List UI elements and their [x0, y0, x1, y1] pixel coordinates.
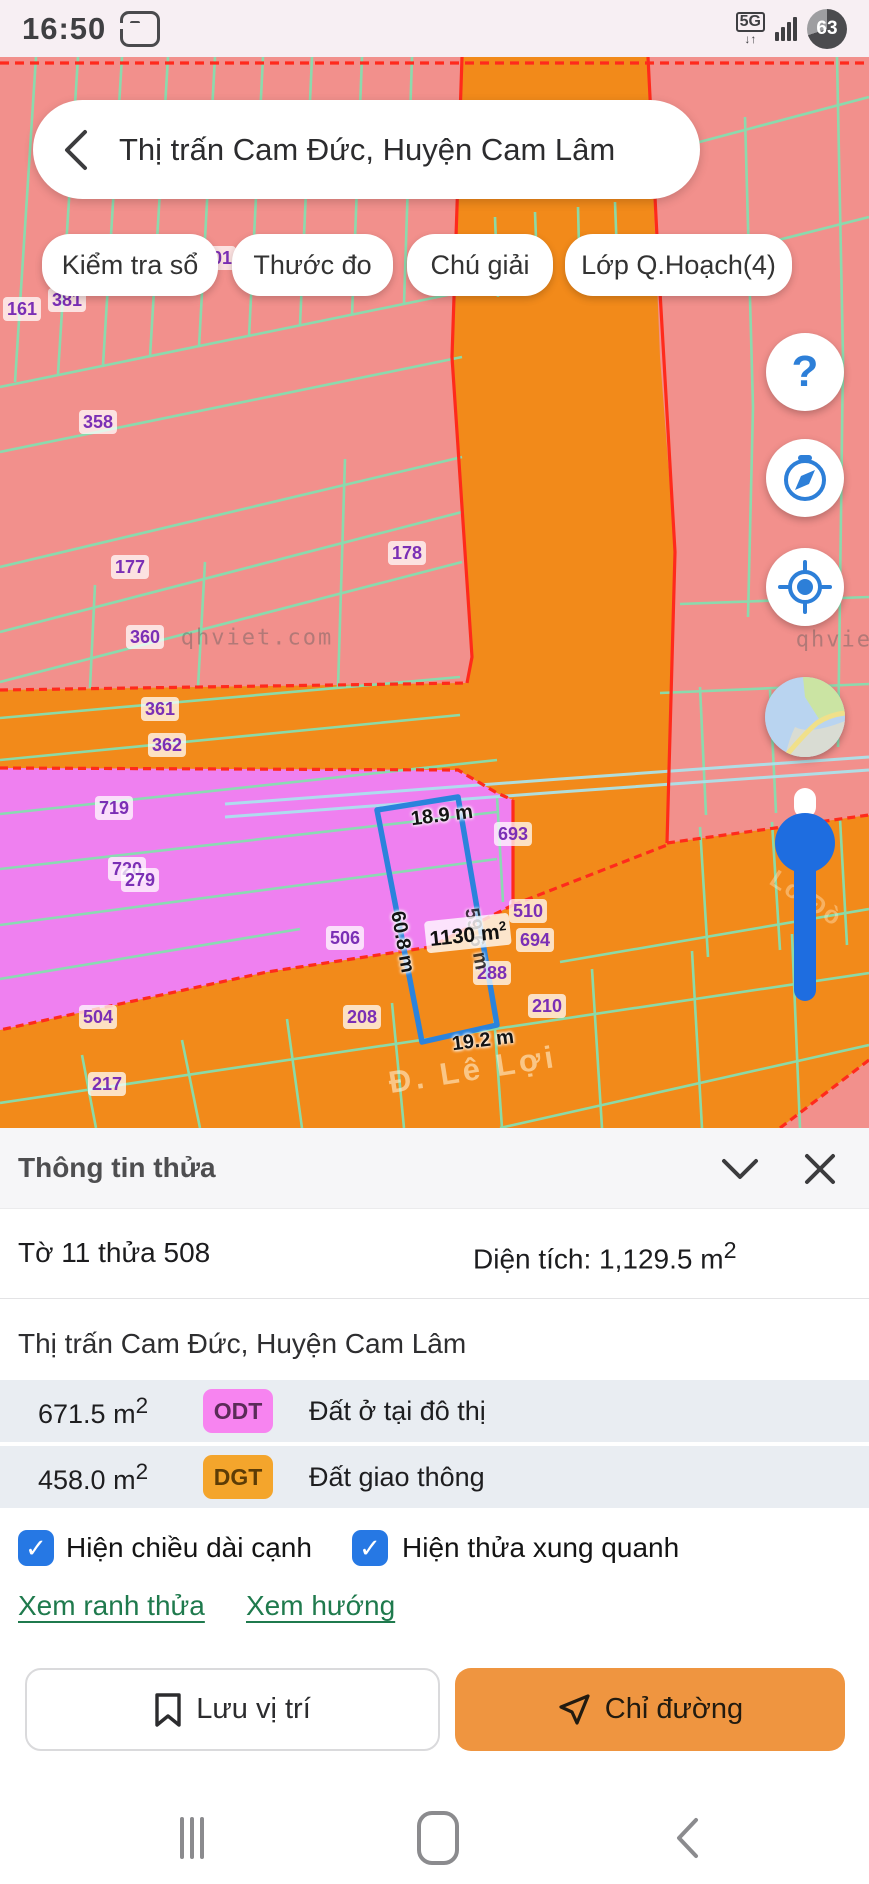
map-canvas: [0, 57, 869, 1128]
location-crosshair-icon: [778, 560, 832, 614]
status-bar: 16:50 5G↓↑ 63: [0, 0, 869, 57]
sheet-title: Thông tin thửa: [18, 1152, 216, 1184]
navigation-send-icon: [557, 1693, 591, 1727]
question-mark-icon: ?: [792, 347, 819, 397]
chevron-down-icon: [721, 1158, 759, 1180]
signal-strength-icon: [775, 17, 797, 41]
land-use-area: 458.0 m2: [38, 1459, 203, 1496]
land-use-area: 671.5 m2: [38, 1393, 203, 1430]
toolbar-button-0[interactable]: Kiểm tra sổ: [42, 234, 218, 296]
land-use-row: 671.5 m2 ODT Đất ở tại đô thị: [0, 1380, 869, 1442]
checkbox-show-surrounding-parcels[interactable]: ✓: [352, 1530, 388, 1566]
bookmark-icon: [154, 1692, 182, 1728]
toolbar-button-3[interactable]: Lớp Q.Hoạch(4): [565, 234, 792, 296]
my-location-button[interactable]: [766, 548, 844, 626]
cadastral-map[interactable]: qhviet.comqhviet.comĐ. Lê LợiLò Đò161381…: [0, 57, 869, 1128]
zoom-slider-knob[interactable]: [775, 813, 835, 873]
basemap-thumbnail-icon: [765, 677, 845, 757]
land-use-description: Đất ở tại đô thị: [309, 1396, 486, 1427]
directions-button[interactable]: Chỉ đường: [455, 1668, 845, 1751]
compass-icon: [779, 452, 831, 504]
compass-button[interactable]: [766, 439, 844, 517]
android-back-button[interactable]: [657, 1808, 717, 1868]
help-button[interactable]: ?: [766, 333, 844, 411]
home-button[interactable]: [408, 1808, 468, 1868]
toolbar-button-1[interactable]: Thước đo: [232, 234, 393, 296]
save-location-button[interactable]: Lưu vị trí: [25, 1668, 440, 1751]
land-use-code-badge: ODT: [203, 1389, 273, 1433]
screen-capture-icon: [120, 11, 160, 47]
checkbox-show-edge-lengths[interactable]: ✓: [18, 1530, 54, 1566]
toolbar-button-label: Chú giải: [430, 250, 529, 281]
recents-button[interactable]: [162, 1808, 222, 1868]
parcel-total-area: Diện tích: 1,129.5 m2: [473, 1237, 737, 1275]
view-parcel-boundary-link[interactable]: Xem ranh thửa: [18, 1590, 205, 1622]
search-bar[interactable]: Thị trấn Cam Đức, Huyện Cam Lâm: [33, 100, 700, 199]
toolbar-button-label: Thước đo: [253, 250, 371, 281]
land-use-row: 458.0 m2 DGT Đất giao thông: [0, 1446, 869, 1508]
network-5g-icon: 5G↓↑: [736, 12, 765, 45]
directions-label: Chỉ đường: [605, 1693, 743, 1726]
checkbox-label[interactable]: Hiện chiều dài cạnh: [66, 1532, 312, 1564]
parcel-id: Tờ 11 thửa 508: [18, 1237, 210, 1269]
display-options: ✓ Hiện chiều dài cạnh ✓ Hiện thửa xung q…: [0, 1530, 869, 1570]
land-map-app: { "status_bar": { "time": "16:50", "netw…: [0, 0, 869, 1884]
parcel-address: Thị trấn Cam Đức, Huyện Cam Lâm: [18, 1328, 466, 1360]
basemap-layer-button[interactable]: [765, 677, 845, 757]
battery-indicator: 63: [807, 9, 847, 49]
android-navbar: [0, 1790, 869, 1884]
collapse-button[interactable]: [717, 1146, 763, 1192]
view-orientation-link[interactable]: Xem hướng: [246, 1590, 395, 1622]
close-button[interactable]: [797, 1146, 843, 1192]
close-icon: [804, 1153, 836, 1185]
land-use-code-badge: DGT: [203, 1455, 273, 1499]
toolbar-button-2[interactable]: Chú giải: [407, 234, 553, 296]
toolbar-button-label: Kiểm tra sổ: [62, 250, 199, 281]
land-use-description: Đất giao thông: [309, 1462, 485, 1493]
map-toolbar: Kiểm tra sổThước đoChú giảiLớp Q.Hoạch(4…: [0, 234, 869, 296]
back-icon[interactable]: [33, 100, 119, 199]
parcel-summary-row: Tờ 11 thửa 508 Diện tích: 1,129.5 m2: [0, 1209, 869, 1299]
save-location-label: Lưu vị trí: [196, 1693, 311, 1726]
checkbox-label[interactable]: Hiện thửa xung quanh: [402, 1532, 679, 1564]
clock: 16:50: [22, 11, 106, 47]
back-chevron-icon: [674, 1816, 700, 1860]
toolbar-button-label: Lớp Q.Hoạch(4): [581, 250, 776, 281]
search-query[interactable]: Thị trấn Cam Đức, Huyện Cam Lâm: [119, 132, 615, 168]
parcel-info-sheet: Thông tin thửa Tờ 11 thửa 508 Diện tích:…: [0, 1128, 869, 1884]
